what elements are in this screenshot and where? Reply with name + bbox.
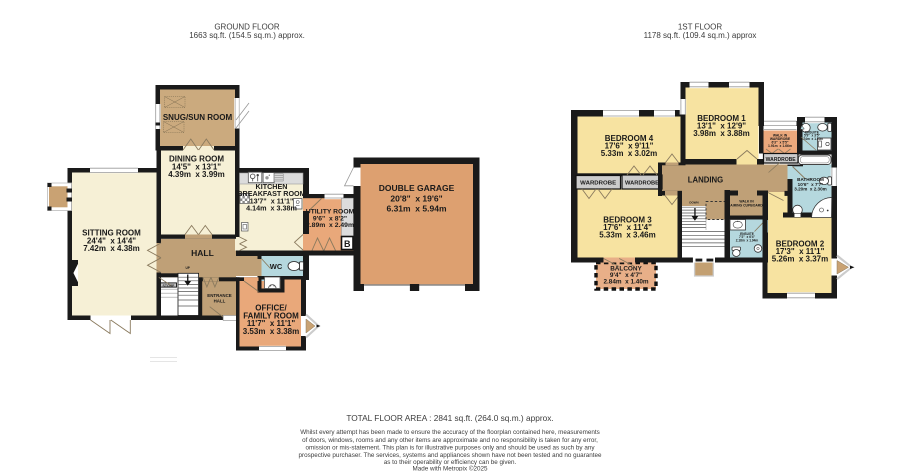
svg-text:2.89m x 2.49m: 2.89m x 2.49m xyxy=(306,222,354,229)
svg-text:omission or mis-statement. Thi: omission or mis-statement. This plan is … xyxy=(306,444,596,451)
svg-text:prospective purchaser. The ser: prospective purchaser. The services, sys… xyxy=(298,452,602,459)
svg-text:of doors, windows, rooms and a: of doors, windows, rooms and any other i… xyxy=(302,437,598,444)
svg-text:HALL: HALL xyxy=(214,299,226,304)
svg-text:WARDROBE: WARDROBE xyxy=(766,157,797,163)
svg-text:1663 sq.ft. (154.5 sq.m.) appr: 1663 sq.ft. (154.5 sq.m.) approx. xyxy=(189,31,305,40)
svg-text:5.33m x 3.46m: 5.33m x 3.46m xyxy=(599,231,655,240)
svg-text:20'8" x 19'6": 20'8" x 19'6" xyxy=(390,193,442,203)
svg-text:HALL: HALL xyxy=(191,248,214,258)
svg-text:5.26m x 3.37m: 5.26m x 3.37m xyxy=(772,255,828,264)
svg-text:6.31m x 5.94m: 6.31m x 5.94m xyxy=(386,204,446,214)
svg-text:WARDROBE: WARDROBE xyxy=(625,181,659,187)
svg-text:1.91m x 1.66m: 1.91m x 1.66m xyxy=(768,144,792,148)
svg-text:4.39m x 3.99m: 4.39m x 3.99m xyxy=(168,170,224,179)
svg-text:1178 sq.ft. (109.4 sq.m.) appr: 1178 sq.ft. (109.4 sq.m.) approx xyxy=(644,31,757,40)
svg-text:2.18m x 1.94m: 2.18m x 1.94m xyxy=(736,238,759,242)
svg-text:3.98m x 3.88m: 3.98m x 3.88m xyxy=(693,129,749,138)
svg-text:B: B xyxy=(344,239,351,249)
svg-text:WARDROBE: WARDROBE xyxy=(580,181,616,187)
svg-text:DOUBLE GARAGE: DOUBLE GARAGE xyxy=(379,183,455,193)
svg-text:ENTRANCE: ENTRANCE xyxy=(207,293,231,298)
svg-text:LANDING: LANDING xyxy=(688,175,724,184)
svg-text:WC: WC xyxy=(270,262,283,271)
svg-text:SNUG/SUN ROOM: SNUG/SUN ROOM xyxy=(163,113,233,122)
svg-text:3.53m x 3.38m: 3.53m x 3.38m xyxy=(243,327,299,336)
svg-text:7.42m x 4.38m: 7.42m x 4.38m xyxy=(83,244,139,253)
svg-text:TOTAL FLOOR AREA : 2841 sq.ft.: TOTAL FLOOR AREA : 2841 sq.ft. (264.0 sq… xyxy=(346,413,553,423)
svg-text:1.74m x 1.05m: 1.74m x 1.05m xyxy=(801,137,824,141)
svg-text:3.20m x 2.30m: 3.20m x 2.30m xyxy=(794,187,826,192)
svg-text:Made with Metropix ©2025: Made with Metropix ©2025 xyxy=(413,465,488,471)
svg-text:DOWN: DOWN xyxy=(689,201,698,205)
svg-text:4.14m x 3.38m: 4.14m x 3.38m xyxy=(246,204,297,213)
svg-text:AIRING CUPBOARD: AIRING CUPBOARD xyxy=(730,204,763,208)
svg-text:Whilst every attempt has been: Whilst every attempt has been made to en… xyxy=(300,429,600,436)
svg-text:5.33m x 3.02m: 5.33m x 3.02m xyxy=(601,149,657,158)
svg-text:2.84m x 1.40m: 2.84m x 1.40m xyxy=(603,279,648,286)
